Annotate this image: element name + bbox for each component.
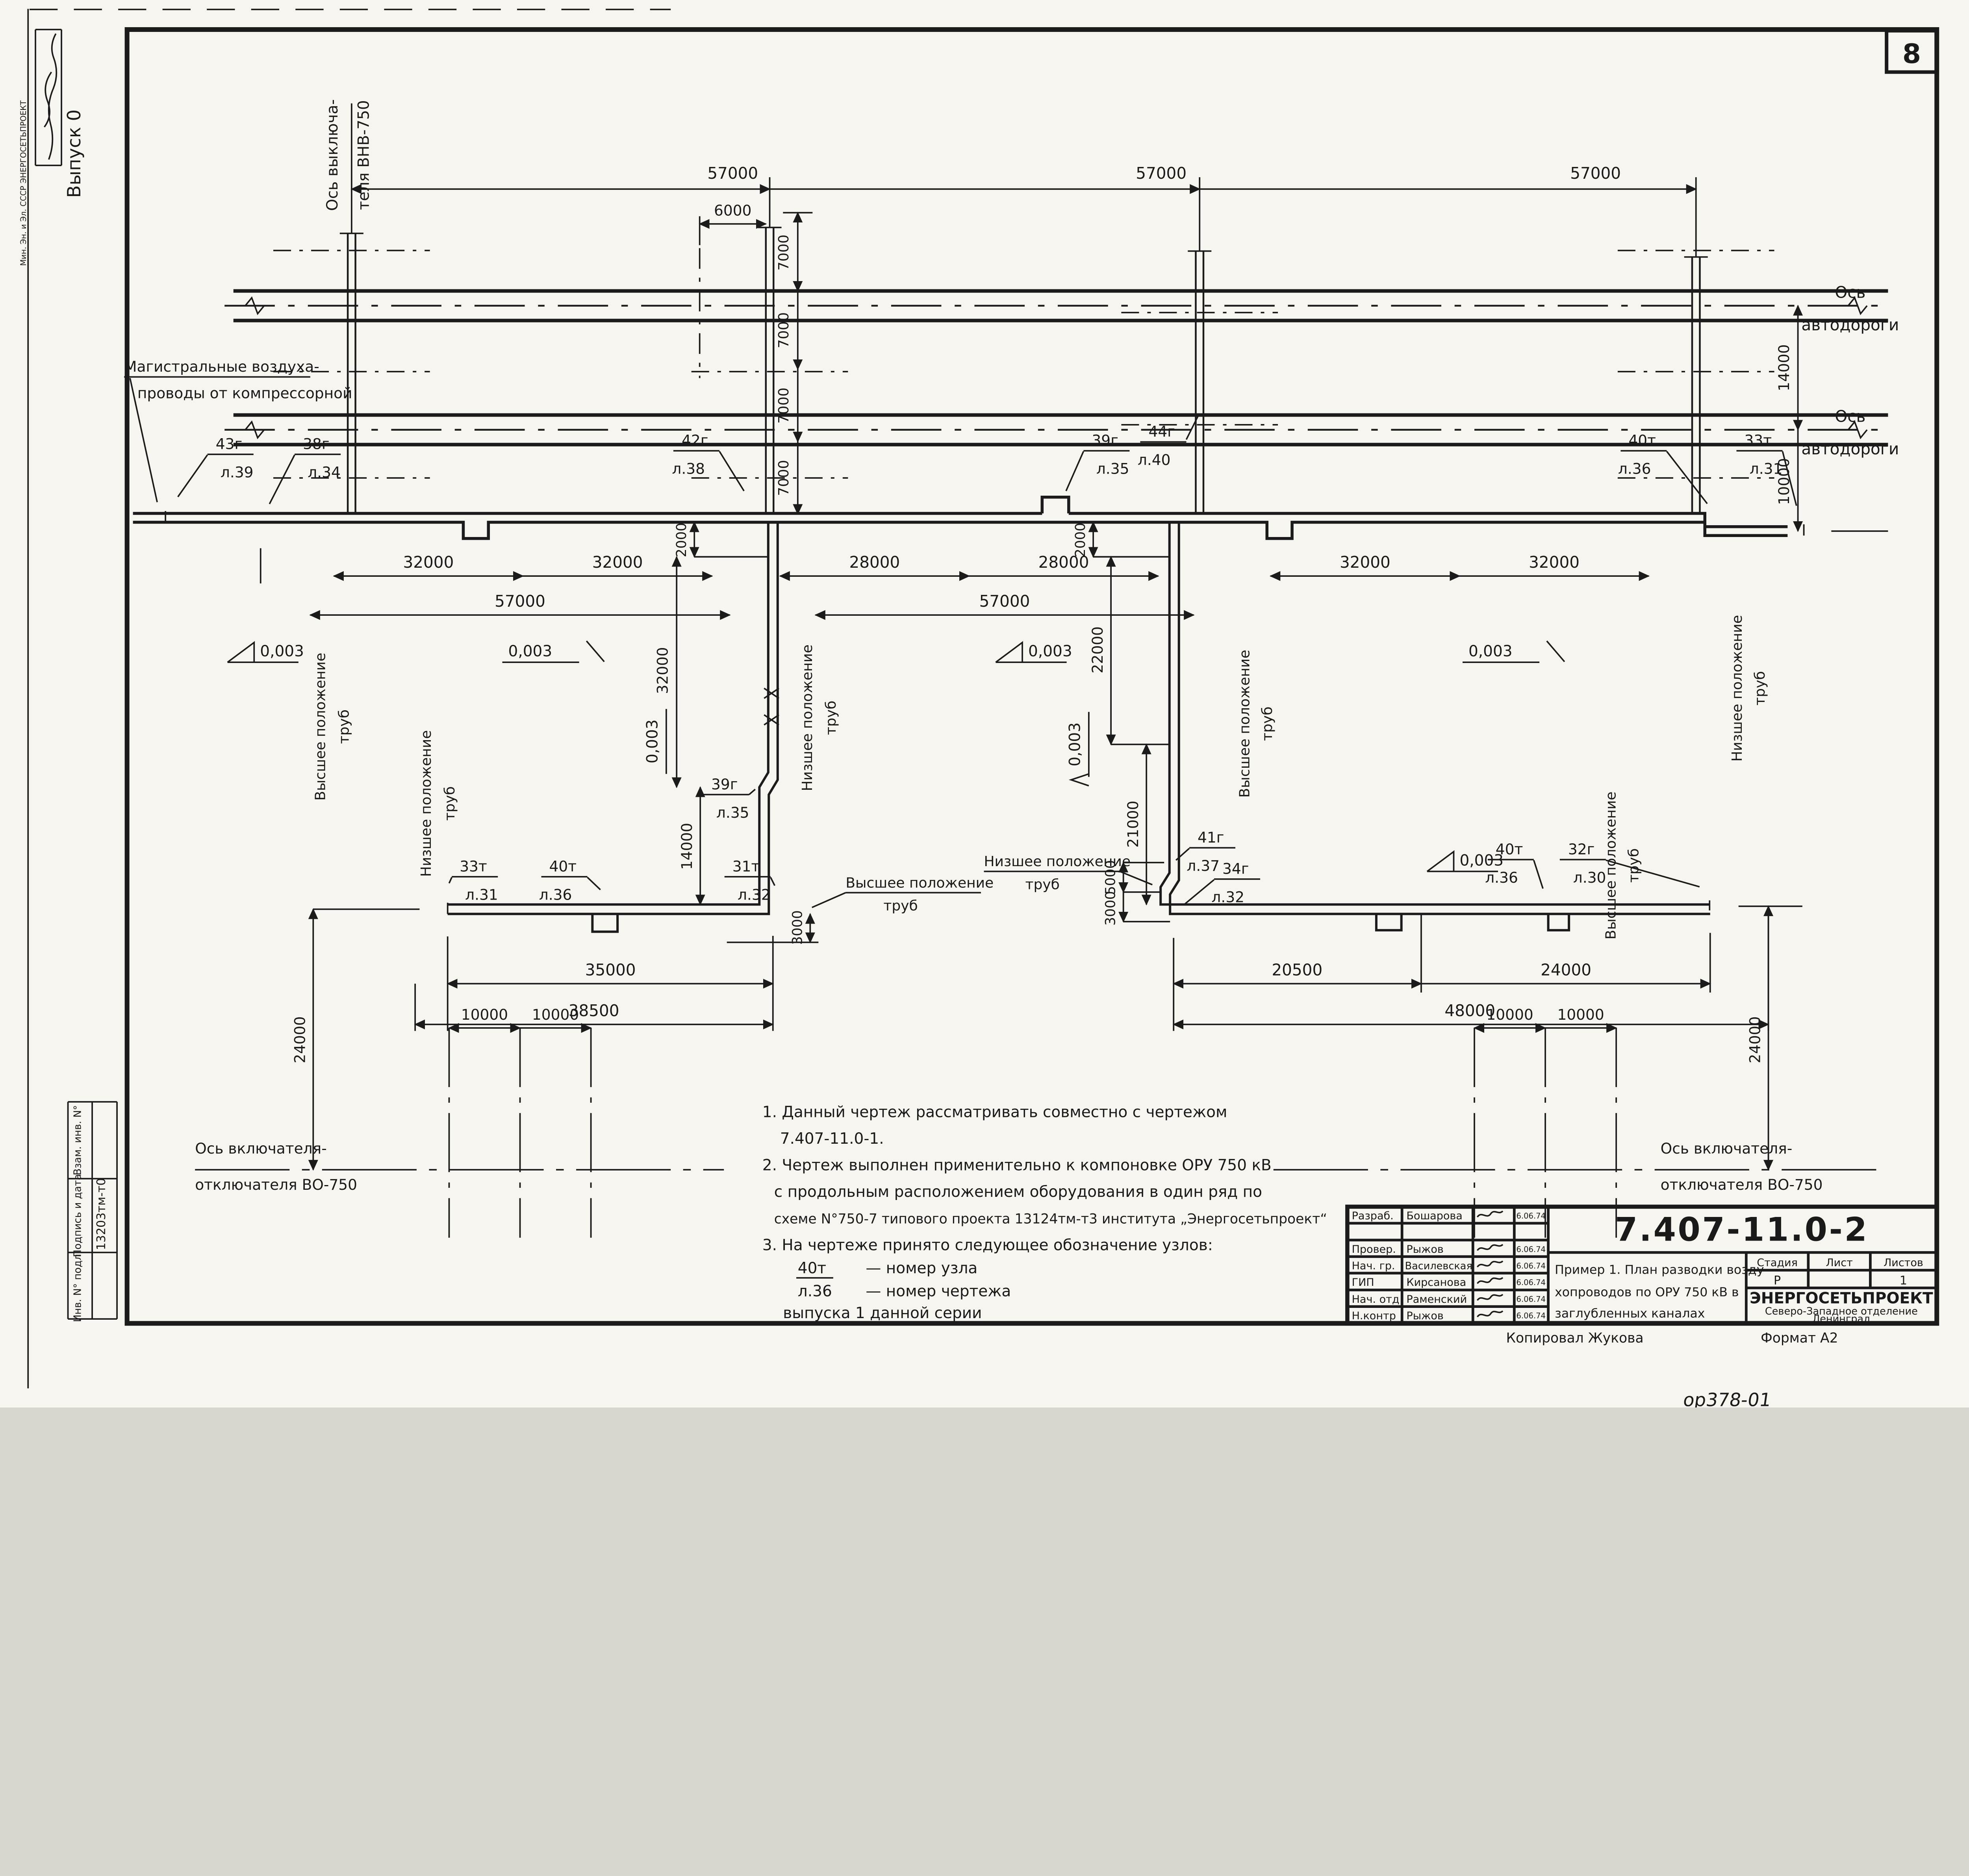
dim-2000: 2000	[674, 523, 690, 557]
pos-low-v1a: Низшее положение	[418, 730, 434, 877]
sheets-header: Листов	[1884, 1257, 1923, 1269]
dim-7000: 7000	[776, 235, 792, 271]
slope-label: 0,003	[260, 643, 304, 660]
svg-text:33т: 33т	[1745, 431, 1772, 449]
main-air-label-1: Магистральные воздуха-	[124, 358, 319, 375]
pos-high-h1b: труб	[883, 898, 918, 914]
svg-text:Н.контр: Н.контр	[1352, 1310, 1396, 1322]
svg-text:л.30: л.30	[1573, 869, 1606, 886]
title-line-1: Пример 1. План разводки возду-	[1555, 1263, 1769, 1277]
svg-text:Раменский: Раменский	[1406, 1293, 1467, 1306]
dim-24000-v: 24000	[1747, 1016, 1764, 1063]
note-line: с продольным расположением оборудования …	[774, 1183, 1262, 1201]
stage-header: Стадия	[1757, 1257, 1798, 1269]
pos-high-v1a: Высшее положение	[312, 653, 328, 801]
bottom-axis-left-label-1: Ось включателя-	[195, 1140, 327, 1157]
dim-6000: 6000	[714, 202, 751, 219]
bottom-axis-right-label-2: отключателя ВО-750	[1661, 1176, 1823, 1193]
svg-text:40т: 40т	[549, 857, 577, 875]
format-label: Формат А2	[1761, 1330, 1838, 1346]
pos-high-v2b: труб	[1259, 707, 1276, 741]
svg-text:л.39: л.39	[221, 463, 254, 481]
dim-28000: 28000	[1038, 553, 1089, 572]
ministry-stamp-text: Мин. Эн. и Эл. СССР ЭНЕРГОСЕТЬПРОЕКТ	[19, 100, 28, 266]
dim-57000: 57000	[979, 592, 1030, 611]
breaker-axis-label-2: теля ВНВ-750	[355, 100, 373, 210]
svg-text:40т: 40т	[1628, 431, 1656, 449]
note-line: 1. Данный чертеж рассматривать совместно…	[762, 1104, 1227, 1121]
bottom-axis-left-label-2: отключателя ВО-750	[195, 1176, 357, 1193]
dim-57000: 57000	[1570, 164, 1621, 183]
side-table-row1: Взам. инв. N°	[72, 1105, 84, 1175]
svg-text:Кирсанова: Кирсанова	[1406, 1276, 1466, 1289]
svg-text:л.35: л.35	[716, 804, 749, 821]
pos-low-h1b: труб	[1025, 876, 1060, 893]
svg-text:Рыжов: Рыжов	[1406, 1243, 1443, 1256]
svg-text:Василевская: Василевская	[1405, 1260, 1472, 1272]
road2-axis-label-2: автодороги	[1801, 439, 1899, 458]
dim-32000: 32000	[1340, 553, 1391, 572]
svg-text:л.31: л.31	[465, 886, 498, 903]
pos-low-v3a: Низшее положение	[1729, 615, 1745, 762]
svg-text:Нач. отд: Нач. отд	[1352, 1293, 1400, 1306]
svg-text:Нач. гр.: Нач. гр.	[1352, 1260, 1395, 1272]
title-line-3: заглубленных каналах	[1555, 1306, 1705, 1320]
dim-10000: 10000	[461, 1006, 508, 1023]
svg-text:л.36: л.36	[539, 886, 572, 903]
stage-value: Р	[1774, 1274, 1781, 1287]
svg-text:л.32: л.32	[1211, 888, 1244, 906]
svg-text:Бошарова: Бошарова	[1406, 1210, 1462, 1222]
svg-text:л.36: л.36	[1485, 869, 1518, 886]
footer-code: ор378-01	[1682, 1390, 1772, 1408]
svg-text:Провер.: Провер.	[1352, 1243, 1396, 1256]
svg-text:л.31: л.31	[1750, 460, 1783, 477]
note-sheet-example: л.36	[798, 1282, 832, 1300]
svg-text:6.06.74: 6.06.74	[1517, 1278, 1546, 1287]
svg-text:44г: 44г	[1148, 423, 1175, 440]
dim-10000: 10000	[1557, 1006, 1604, 1023]
dim-32000: 32000	[1529, 553, 1580, 572]
side-table-row2: Подпись и дата	[72, 1174, 84, 1257]
side-table-code: 13203тм-т0	[95, 1178, 108, 1250]
dim-7000: 7000	[776, 312, 792, 348]
dim-7000: 7000	[776, 387, 792, 424]
svg-text:31т: 31т	[732, 857, 760, 875]
dim-14000-v: 14000	[678, 823, 695, 870]
svg-text:ГИП: ГИП	[1352, 1276, 1374, 1289]
dim-32000: 32000	[403, 553, 454, 572]
svg-text:л.37: л.37	[1187, 857, 1220, 874]
breaker-axis-label-1: Ось выключа-	[324, 99, 341, 211]
page-number: 8	[1902, 38, 1921, 69]
note-line: 3. На чертеже принято следующее обозначе…	[762, 1236, 1213, 1254]
slope-label-v: 0,003	[1066, 722, 1084, 767]
pos-high-v1b: труб	[336, 709, 352, 744]
pos-high-v3a: Высшее положение	[1603, 791, 1619, 939]
org-city: Ленинград	[1812, 1313, 1871, 1325]
svg-text:39г: 39г	[1092, 431, 1118, 449]
dim-57000: 57000	[707, 164, 758, 183]
note-line: — номер чертежа	[866, 1282, 1011, 1300]
dim-57000: 57000	[495, 592, 545, 611]
note-line: 7.407-11.0-1.	[780, 1130, 884, 1148]
dim-32000: 32000	[592, 553, 643, 572]
svg-text:38г: 38г	[303, 435, 329, 452]
pos-low-v2b: труб	[823, 701, 839, 735]
road1-axis-label-2: автодороги	[1801, 315, 1899, 334]
svg-text:л.34: л.34	[308, 463, 341, 481]
dim-24000: 24000	[1541, 960, 1591, 979]
svg-text:40т: 40т	[1496, 841, 1523, 858]
svg-text:33т: 33т	[460, 857, 487, 875]
drawing-sheet: 8 Мин. Эн. и Эл. СССР ЭНЕРГОСЕТЬПРОЕКТ В…	[0, 0, 1969, 1407]
doc-number: 7.407-11.0-2	[1615, 1211, 1869, 1248]
svg-text:л.36: л.36	[1618, 460, 1651, 477]
pos-low-v3b: труб	[1752, 671, 1768, 706]
svg-text:41г: 41г	[1198, 829, 1224, 846]
dim-21000: 21000	[1124, 801, 1142, 848]
sheets-value: 1	[1900, 1274, 1907, 1287]
issue-label: Выпуск 0	[63, 109, 85, 198]
svg-text:6.06.74: 6.06.74	[1517, 1311, 1546, 1320]
note-node-example: 40т	[798, 1259, 826, 1277]
pos-high-v2a: Высшее положение	[1237, 650, 1253, 798]
org-name: ЭНЕРГОСЕТЬПРОЕКТ	[1750, 1289, 1933, 1307]
dim-7000: 7000	[776, 460, 792, 496]
pos-high-v3b: труб	[1626, 848, 1642, 883]
svg-text:л.35: л.35	[1096, 460, 1129, 477]
dim-28000: 28000	[849, 553, 900, 572]
dim-22000: 22000	[1089, 626, 1106, 673]
svg-text:6.06.74: 6.06.74	[1517, 1295, 1546, 1304]
dim-20500: 20500	[1272, 960, 1322, 979]
svg-text:6.06.74: 6.06.74	[1517, 1261, 1546, 1270]
slope-label-v: 0,003	[643, 719, 661, 763]
road2-axis-label-1: Ось	[1835, 407, 1865, 426]
dim-57000: 57000	[1136, 164, 1187, 183]
svg-text:43г: 43г	[216, 435, 242, 452]
svg-text:34г: 34г	[1222, 860, 1249, 877]
dim-32000-v: 32000	[654, 647, 671, 694]
note-line: — номер узла	[866, 1259, 977, 1277]
dim-3000: 3000	[1103, 891, 1119, 926]
svg-text:6.06.74: 6.06.74	[1517, 1211, 1546, 1220]
dim-10000: 10000	[1486, 1006, 1533, 1023]
side-table-row3: Инв. N° подл.	[72, 1251, 84, 1322]
pos-low-v1b: труб	[442, 786, 458, 820]
sheet-header: Лист	[1826, 1257, 1852, 1269]
copied-by: Копировал Жукова	[1506, 1330, 1644, 1346]
dim-10000: 10000	[532, 1006, 579, 1023]
pos-low-h1a: Низшее положение	[984, 854, 1131, 870]
note-line: схеме N°750-7 типового проекта 13124тм-т…	[774, 1211, 1327, 1227]
slope-label: 0,003	[1468, 643, 1513, 660]
dim-3000: 3000	[790, 910, 805, 945]
note-line: 2. Чертеж выполнен применительно к компо…	[762, 1157, 1272, 1174]
main-air-label-2: проводы от компрессорной	[137, 384, 352, 402]
svg-text:л.40: л.40	[1138, 451, 1171, 469]
svg-text:л.32: л.32	[738, 886, 771, 903]
dim-2000: 2000	[1073, 523, 1088, 557]
svg-text:л.38: л.38	[672, 460, 705, 477]
slope-label: 0,003	[508, 643, 553, 660]
road1-axis-label-1: Ось	[1835, 283, 1865, 302]
dim-35000: 35000	[585, 960, 636, 979]
bottom-axis-right-label-1: Ось включателя-	[1661, 1140, 1793, 1157]
title-line-2: хопроводов по ОРУ 750 кВ в	[1555, 1285, 1739, 1299]
dim-24000-v: 24000	[291, 1016, 308, 1063]
svg-text:Разраб.: Разраб.	[1352, 1210, 1394, 1222]
pos-high-h1a: Высшее положение	[845, 875, 994, 891]
svg-text:6.06.74: 6.06.74	[1517, 1245, 1546, 1254]
svg-text:39г: 39г	[711, 776, 738, 793]
svg-text:32г: 32г	[1568, 841, 1594, 858]
slope-label: 0,003	[1028, 643, 1072, 660]
svg-text:42г: 42г	[682, 431, 708, 449]
pos-low-v2a: Низшее положение	[799, 644, 816, 791]
dim-14000: 14000	[1775, 344, 1793, 391]
note-line: выпуска 1 данной серии	[783, 1304, 982, 1322]
svg-text:Рыжов: Рыжов	[1406, 1310, 1443, 1322]
